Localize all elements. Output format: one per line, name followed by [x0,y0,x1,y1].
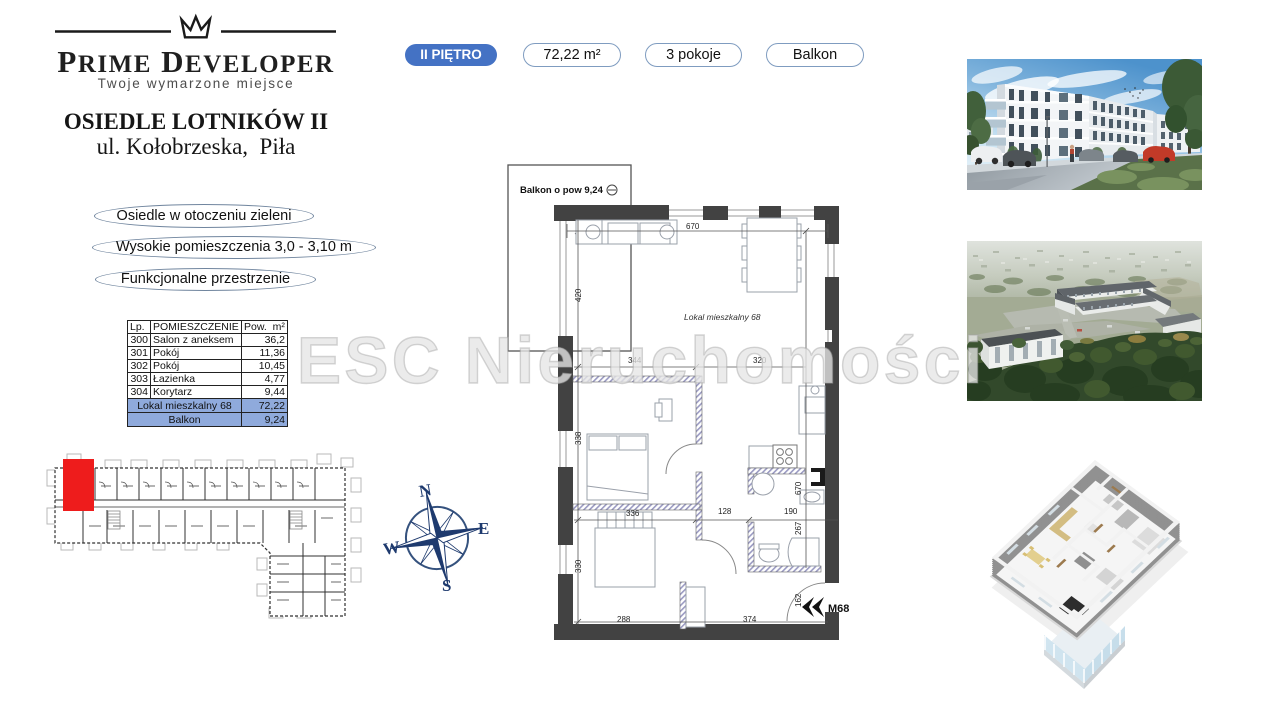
svg-text:128: 128 [718,507,732,516]
svg-text:670: 670 [686,222,700,231]
svg-text:E: E [478,519,489,538]
svg-text:330: 330 [574,559,583,573]
svg-text:M68: M68 [828,603,849,615]
svg-text:162: 162 [794,593,803,607]
svg-text:670: 670 [794,481,803,495]
svg-text:267: 267 [794,521,803,535]
svg-text:Balkon o pow 9,24: Balkon o pow 9,24 [520,185,604,196]
svg-text:336: 336 [626,509,640,518]
svg-text:374: 374 [743,615,757,624]
svg-text:190: 190 [784,507,798,516]
svg-text:N: N [418,480,434,501]
svg-text:W: W [383,537,402,559]
svg-text:Lokal mieszkalny 68: Lokal mieszkalny 68 [684,312,761,322]
svg-text:338: 338 [574,431,583,445]
svg-text:S: S [442,576,451,595]
svg-text:420: 420 [574,288,583,302]
svg-text:288: 288 [617,615,631,624]
